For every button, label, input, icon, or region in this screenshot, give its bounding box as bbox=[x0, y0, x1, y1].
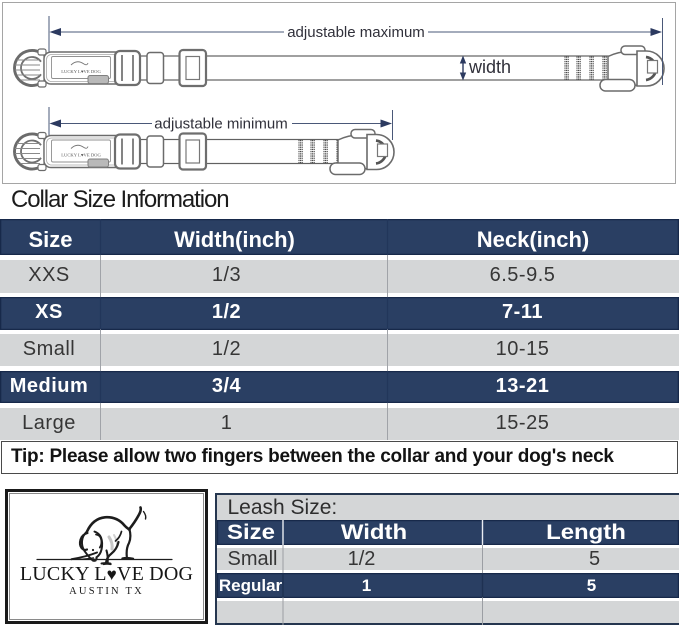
svg-text:width: width bbox=[468, 57, 511, 77]
svg-text:adjustable minimum: adjustable minimum bbox=[154, 116, 287, 133]
svg-text:adjustable maximum: adjustable maximum bbox=[287, 24, 425, 41]
